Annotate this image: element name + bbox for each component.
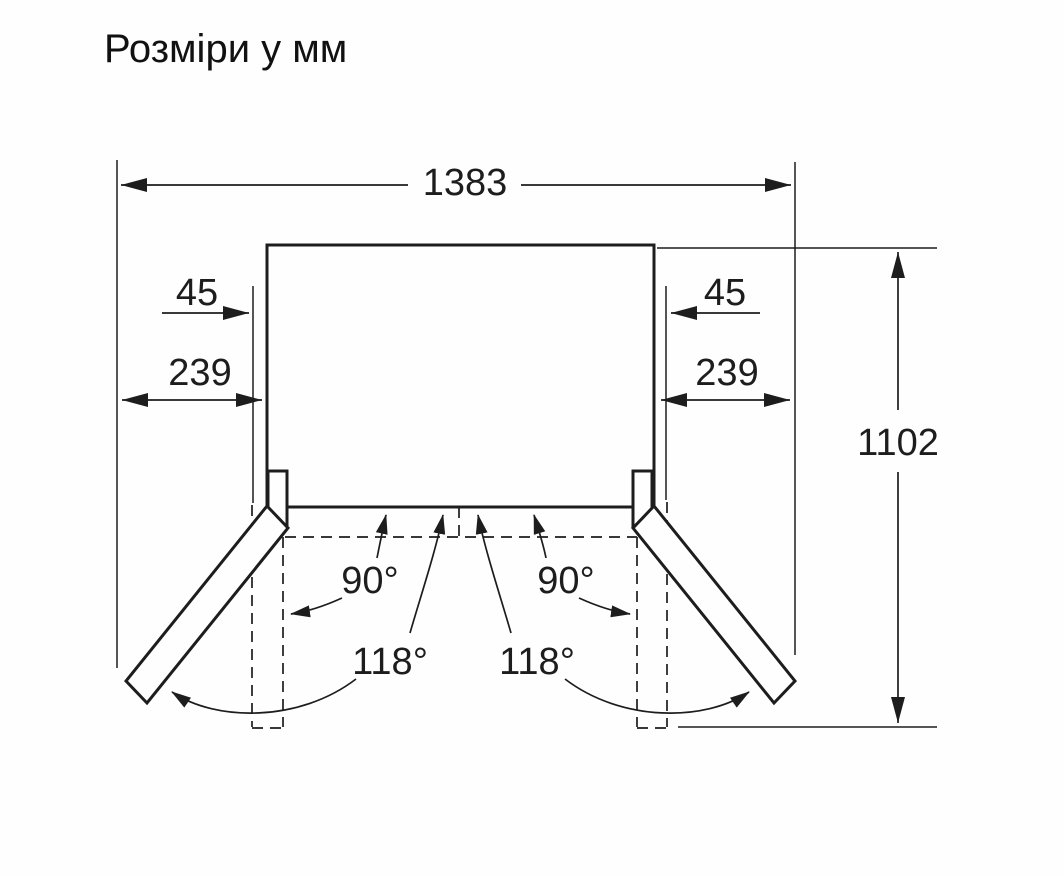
angle-90-left-label: 90° (341, 560, 398, 602)
fridge-clearance-diagram: Розміри у мм 1383 1102 239 239 905 (0, 0, 1064, 876)
left-door-open-118 (126, 506, 288, 703)
dim-left-clearance: 239 (122, 352, 262, 400)
dim-depth-value: 1102 (857, 422, 939, 464)
right-door-open-118 (633, 506, 795, 703)
dim-left-door-offset-value: 45 (176, 272, 218, 314)
left-90-side-arrow (291, 598, 342, 614)
right-118-up-arrow (478, 515, 511, 633)
angle-118-left-label: 118° (352, 641, 428, 683)
left-118-arc-arrow (172, 679, 356, 713)
cabinet-outline (267, 245, 654, 507)
dim-total-width: 1383 (121, 162, 791, 204)
diagram-title: Розміри у мм (104, 27, 347, 71)
dim-total-width-value: 1383 (423, 162, 508, 204)
dim-right-clearance-value: 239 (695, 352, 758, 394)
right-118-arc-arrow (565, 679, 749, 713)
door-90deg-positions (252, 502, 668, 728)
left-118-up-arrow (410, 515, 443, 633)
angle-90-right-label: 90° (537, 560, 594, 602)
dim-depth: 1102 (857, 252, 939, 723)
dim-left-clearance-value: 239 (168, 352, 231, 394)
angle-118-right-label: 118° (499, 641, 575, 683)
diagram-page: Розміри у мм 1383 1102 239 239 905 (0, 0, 1064, 876)
dim-right-clearance: 239 (661, 352, 790, 400)
dim-right-door-offset-value: 45 (704, 272, 746, 314)
